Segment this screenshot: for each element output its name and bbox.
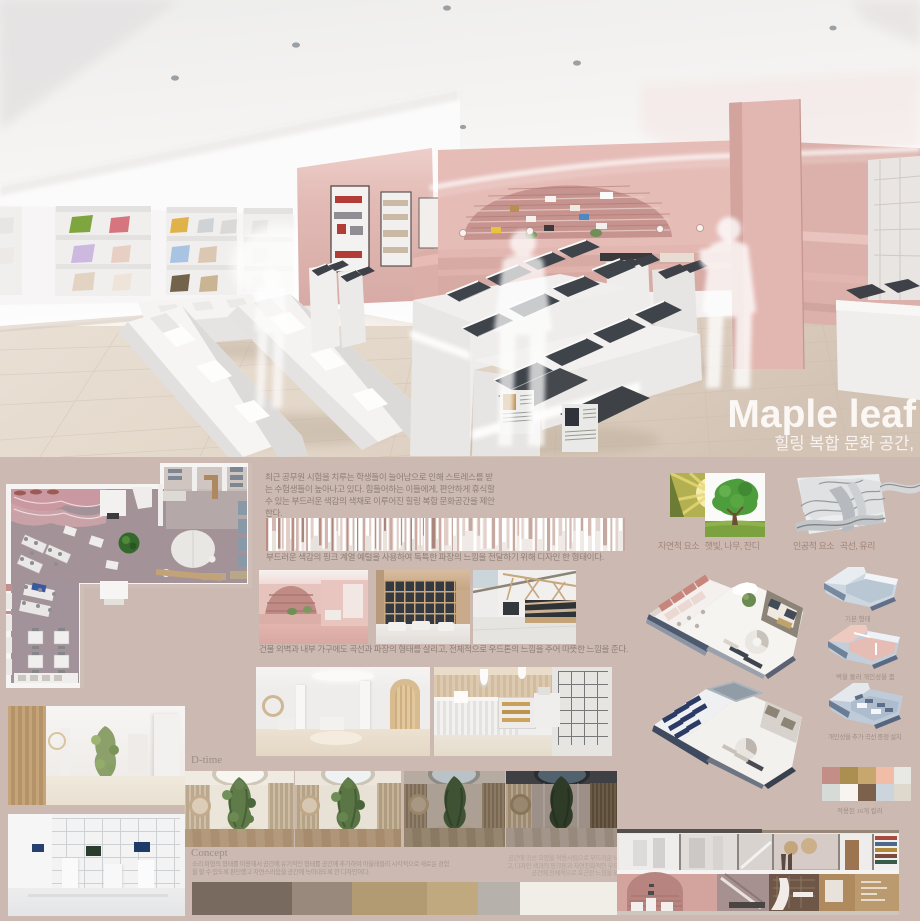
svg-text:Maple leaf: Maple leaf	[727, 393, 917, 436]
svg-text:힐링 복합 문화 공간,: 힐링 복합 문화 공간,	[774, 434, 914, 453]
